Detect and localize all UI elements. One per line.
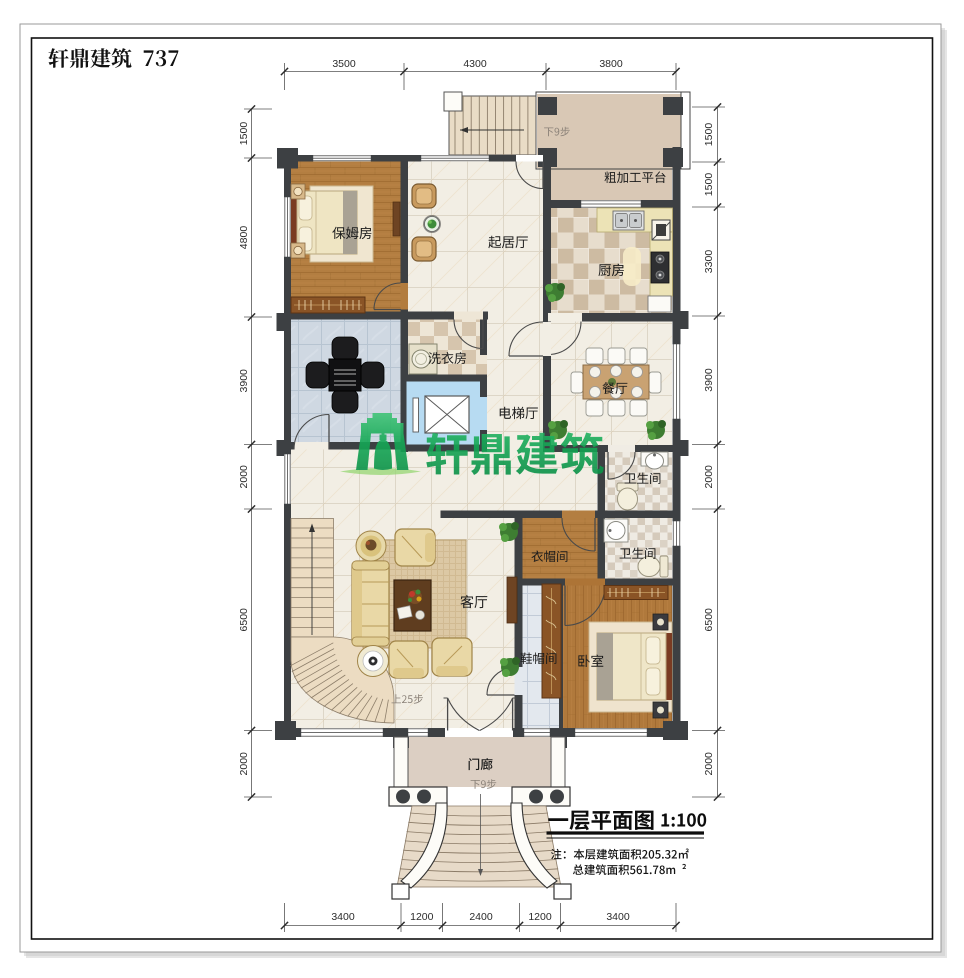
svg-text:1200: 1200: [528, 911, 552, 923]
svg-text:2000: 2000: [703, 752, 715, 776]
svg-text:4800: 4800: [238, 226, 250, 250]
svg-text:3900: 3900: [238, 369, 250, 393]
svg-text:6500: 6500: [703, 608, 715, 632]
svg-text:2000: 2000: [703, 465, 715, 489]
svg-text:3500: 3500: [332, 58, 356, 70]
svg-text:3800: 3800: [599, 58, 623, 70]
svg-text:3900: 3900: [703, 368, 715, 392]
svg-text:2000: 2000: [238, 465, 250, 489]
svg-text:3400: 3400: [331, 911, 355, 923]
svg-text:1500: 1500: [238, 122, 250, 146]
svg-text:2000: 2000: [238, 752, 250, 776]
svg-text:2400: 2400: [469, 911, 493, 923]
svg-text:1500: 1500: [703, 123, 715, 147]
svg-text:1500: 1500: [703, 173, 715, 197]
svg-text:1200: 1200: [410, 911, 434, 923]
svg-text:3300: 3300: [703, 250, 715, 274]
svg-text:4300: 4300: [463, 58, 487, 70]
svg-text:3400: 3400: [606, 911, 630, 923]
svg-text:6500: 6500: [238, 608, 250, 632]
